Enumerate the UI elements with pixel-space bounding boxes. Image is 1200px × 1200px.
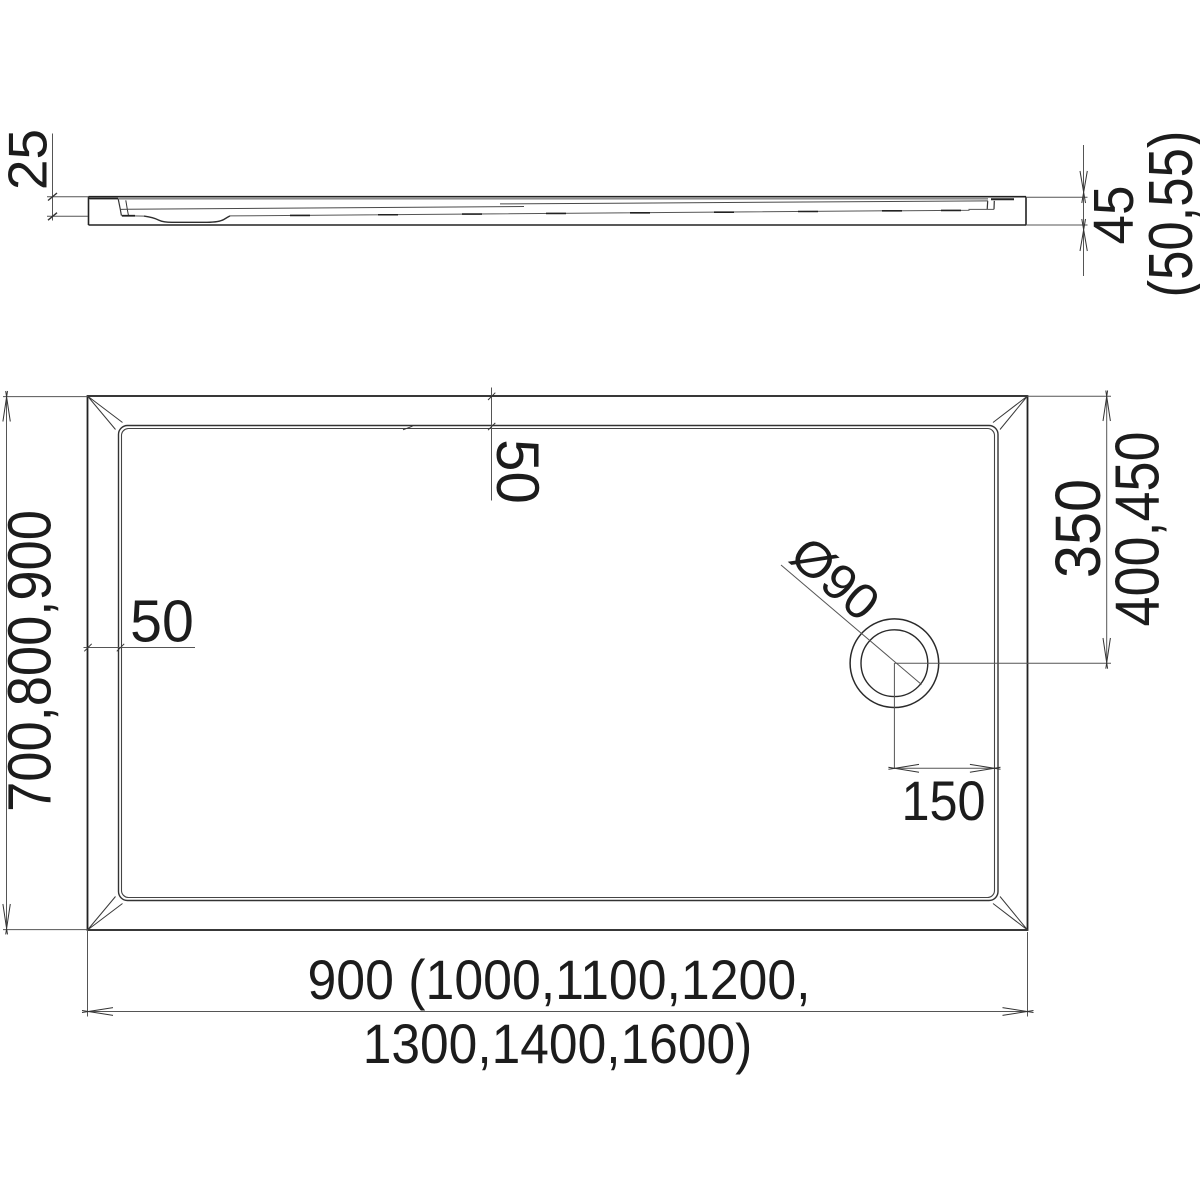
svg-text:25: 25 — [0, 129, 59, 190]
svg-text:50: 50 — [130, 589, 194, 655]
svg-text:400,450: 400,450 — [1103, 432, 1172, 627]
svg-text:1300,1400,1600): 1300,1400,1600) — [363, 1013, 753, 1075]
svg-text:(50,55): (50,55) — [1137, 131, 1200, 298]
svg-text:150: 150 — [901, 771, 985, 833]
svg-text:45: 45 — [1081, 186, 1145, 245]
svg-text:900 (1000,1100,1200,: 900 (1000,1100,1200, — [307, 949, 810, 1011]
svg-text:50: 50 — [484, 439, 552, 504]
svg-text:700,800,900: 700,800,900 — [0, 510, 64, 812]
